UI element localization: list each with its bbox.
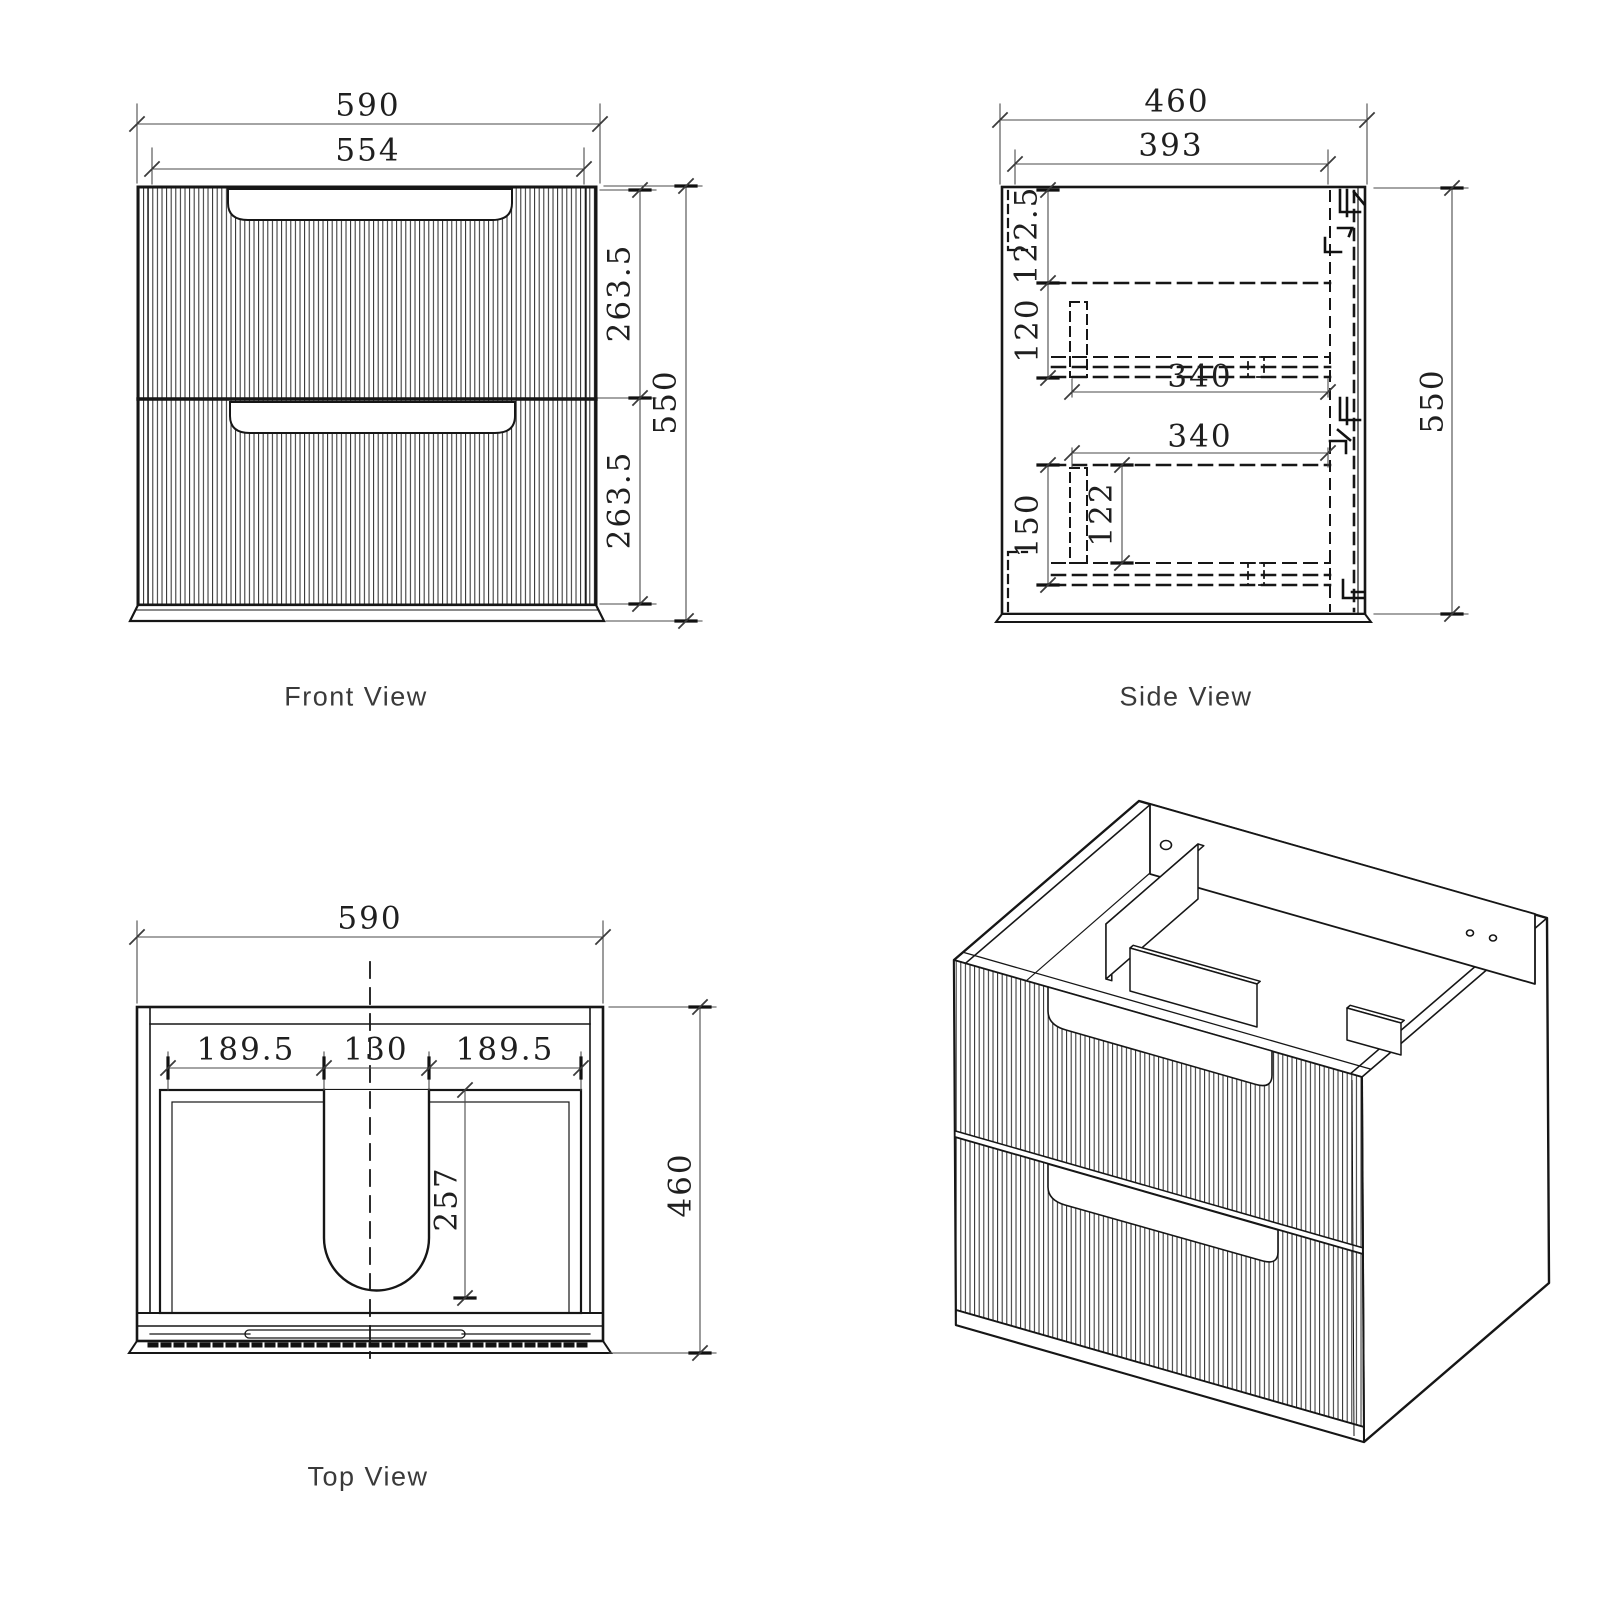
top-view-label: Top View: [307, 1464, 428, 1491]
side-dim-overall-depth: 460: [1144, 87, 1209, 118]
side-dim-top-clearance: 122.5: [1012, 186, 1043, 285]
side-dim-drawer2-internal: 122: [1087, 481, 1118, 546]
side-view-label: Side View: [1119, 684, 1252, 711]
side-dim-drawer1-runner: 340: [1167, 362, 1232, 393]
front-dim-lower-drawer-height: 263.5: [605, 451, 636, 550]
front-view-label: Front View: [284, 684, 428, 711]
drawing-sheet: 590 554 263.5 550 263.5 Front View 460 3…: [0, 0, 1600, 1600]
front-view-drawing: [130, 104, 702, 628]
side-dim-drawer1-internal: 120: [1013, 297, 1044, 362]
top-dim-overall-width: 590: [337, 904, 402, 935]
top-view-drawing: [129, 921, 716, 1360]
front-dim-upper-drawer-height: 263.5: [605, 244, 636, 343]
drawing-linework: [0, 0, 1600, 1600]
front-dim-overall-height: 550: [651, 369, 682, 434]
top-dim-overall-depth: 460: [666, 1152, 697, 1217]
front-dim-overall-width: 590: [335, 91, 400, 122]
top-dim-right-offset: 189.5: [456, 1035, 555, 1066]
top-dim-left-offset: 189.5: [197, 1035, 296, 1066]
front-dim-drawer-width: 554: [335, 136, 400, 167]
side-dim-overall-height: 550: [1418, 368, 1449, 433]
side-dim-drawer2-clearance: 150: [1013, 492, 1044, 557]
top-dim-cutout-width: 130: [343, 1035, 408, 1066]
top-dim-cutout-depth: 257: [432, 1166, 463, 1231]
isometric-view-drawing: [954, 801, 1549, 1442]
side-dim-internal-depth: 393: [1138, 131, 1203, 162]
side-dim-drawer2-runner: 340: [1167, 422, 1232, 453]
